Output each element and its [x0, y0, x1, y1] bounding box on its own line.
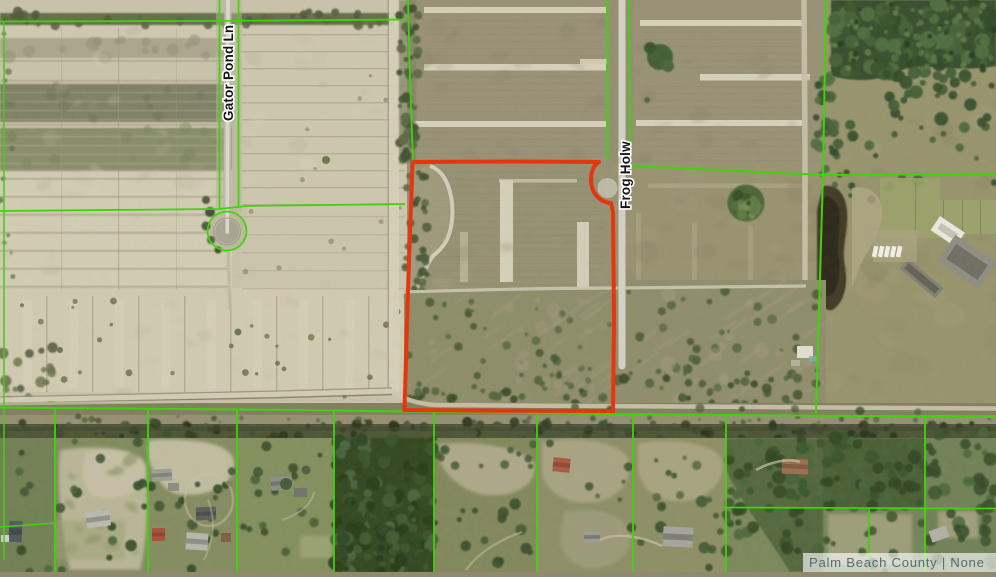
svg-text:Gator Pond Ln: Gator Pond Ln: [221, 25, 236, 121]
svg-text:Palm Beach County | None: Palm Beach County | None: [809, 555, 985, 570]
svg-text:Frog Holw: Frog Holw: [618, 141, 633, 209]
